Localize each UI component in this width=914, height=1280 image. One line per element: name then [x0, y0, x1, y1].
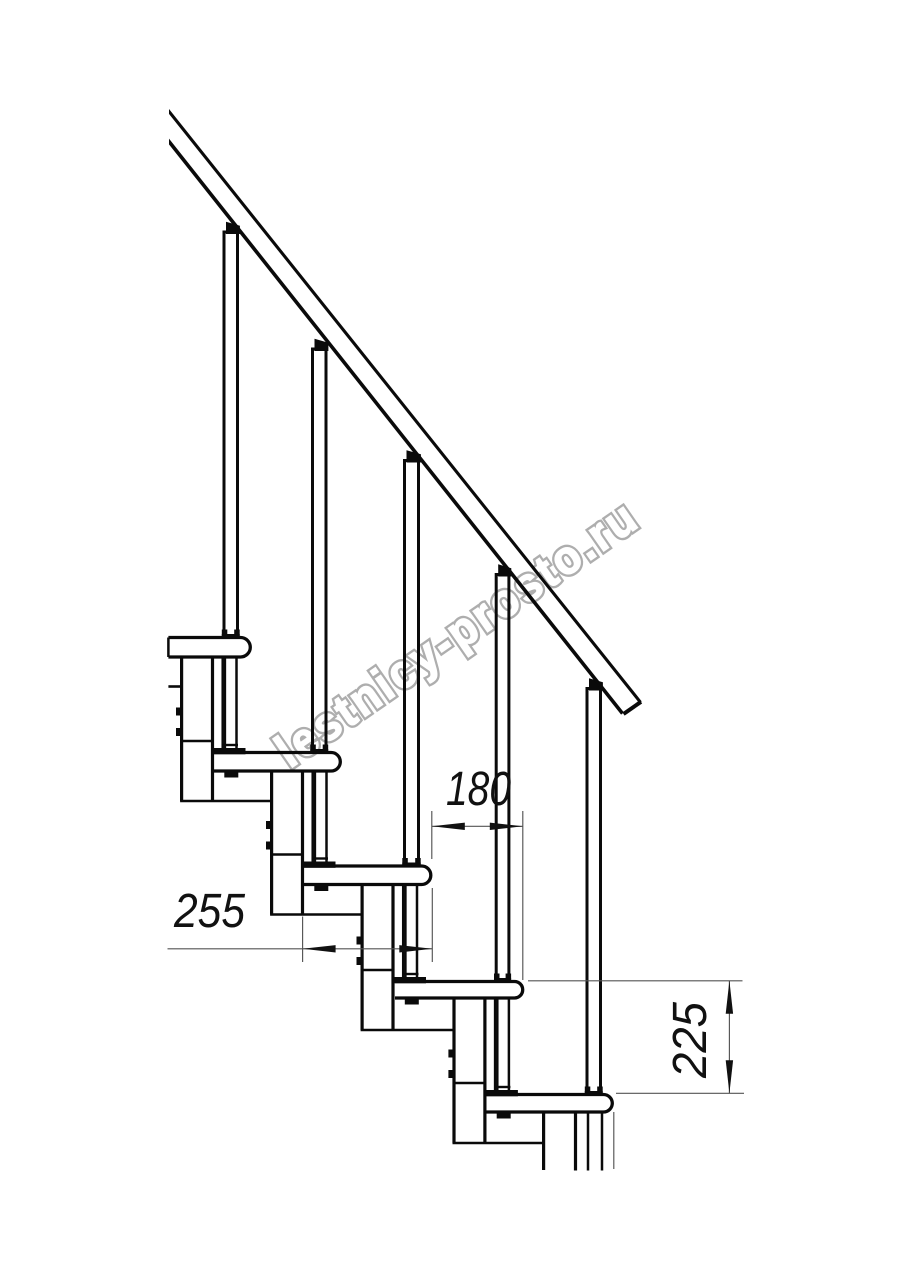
svg-text:255: 255: [173, 885, 245, 938]
svg-text:180: 180: [446, 763, 511, 816]
svg-text:225: 225: [664, 1002, 717, 1079]
